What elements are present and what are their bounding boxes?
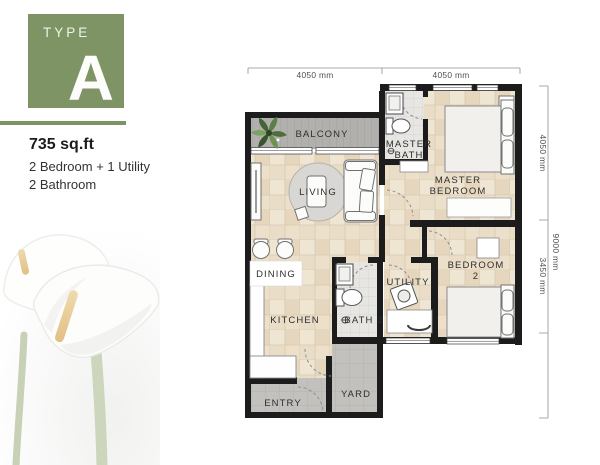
balcony-label: BALCONY <box>295 129 348 140</box>
dim-top-left: 4050 mm <box>296 70 333 80</box>
dining-label: DINING <box>250 261 302 286</box>
svg-text:BEDROOM: BEDROOM <box>448 260 505 271</box>
kitchen-label: KITCHEN <box>270 315 319 326</box>
svg-text:DINING: DINING <box>256 269 296 280</box>
utility-counter <box>387 310 432 333</box>
dim-top-right: 4050 mm <box>432 70 469 80</box>
floor-plan: BALCONY LIVING DINING KITCHEN BATH 2 UTI… <box>0 0 600 465</box>
bedroom2-bed <box>447 285 514 338</box>
svg-text:BEDROOM: BEDROOM <box>430 186 487 197</box>
dim-right-lower: 3450 mm <box>538 257 548 294</box>
sofa <box>344 160 377 222</box>
yard-floor <box>332 343 378 413</box>
master-wardrobe <box>400 161 428 172</box>
bath2-toilet <box>336 289 362 306</box>
floorplan-brochure: TYPE A 735 sq.ft 2 Bedroom + 1 Utility 2… <box>0 0 600 465</box>
bedroom2-wardrobe <box>477 238 499 258</box>
master-bedroom-mat <box>447 198 511 217</box>
dim-right-upper: 4050 mm <box>538 134 548 171</box>
bath2-sink <box>336 264 353 285</box>
living-label: LIVING <box>299 187 337 198</box>
svg-text:MASTER: MASTER <box>386 139 432 150</box>
master-bedroom-label: MASTER BEDROOM <box>430 175 487 197</box>
master-bath-toilet <box>386 118 410 134</box>
bath2-label: BATH 2 <box>344 315 383 326</box>
kitchen-counter <box>250 356 296 378</box>
svg-text:2: 2 <box>473 271 479 282</box>
master-bath-sink <box>386 93 403 114</box>
yard-label: YARD <box>341 389 371 400</box>
tv-console <box>251 163 261 220</box>
entry-label: ENTRY <box>264 398 302 409</box>
svg-text:BATH: BATH <box>394 150 423 161</box>
dim-right-total: 9000 mm <box>551 233 561 270</box>
master-bed <box>445 96 514 174</box>
utility-label: UTILITY <box>386 277 429 288</box>
svg-text:MASTER: MASTER <box>435 175 481 186</box>
